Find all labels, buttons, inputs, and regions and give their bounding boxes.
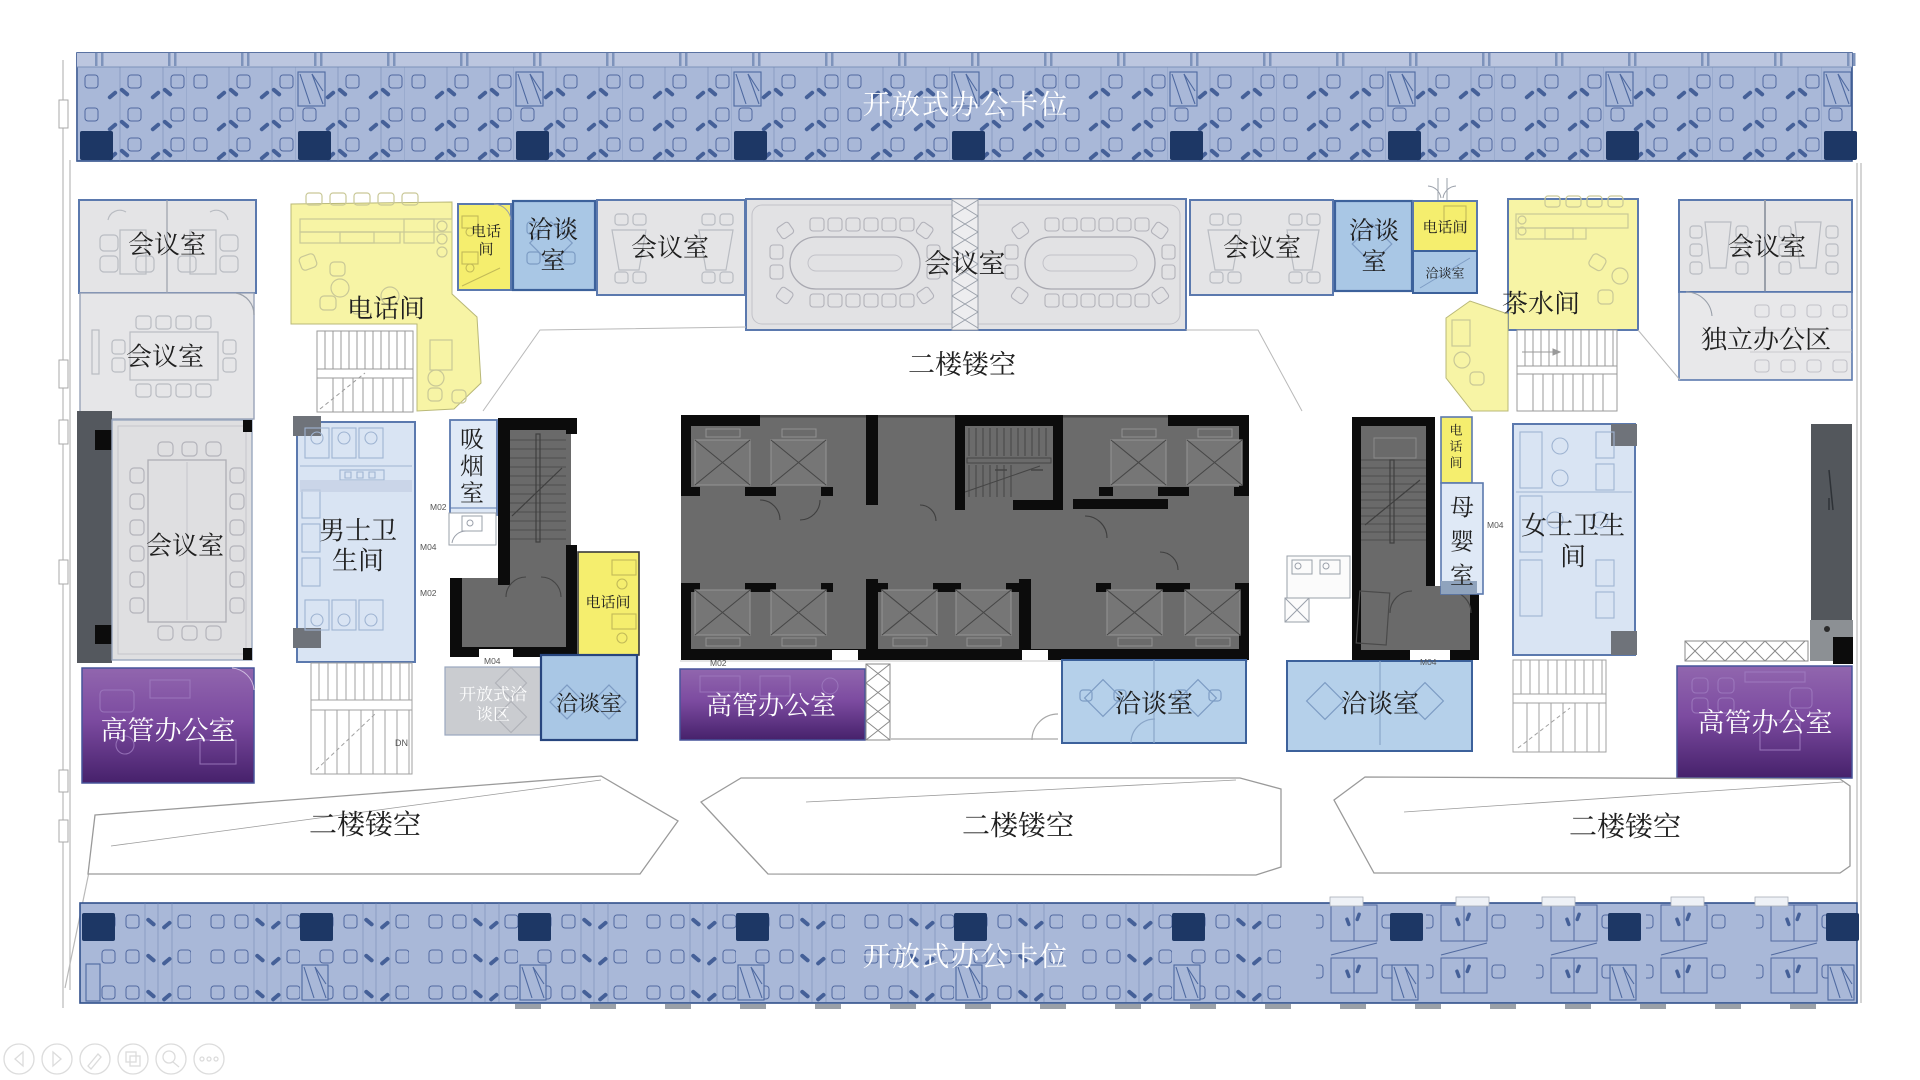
svg-text:M04: M04	[420, 542, 437, 552]
svg-text:M02: M02	[430, 502, 447, 512]
svg-text:DN: DN	[395, 738, 408, 748]
svg-text:M02: M02	[420, 588, 437, 598]
svg-text:M04: M04	[1487, 520, 1504, 530]
svg-text:M04: M04	[484, 656, 501, 666]
svg-text:M02: M02	[710, 658, 727, 668]
svg-text:M04: M04	[1420, 657, 1437, 667]
